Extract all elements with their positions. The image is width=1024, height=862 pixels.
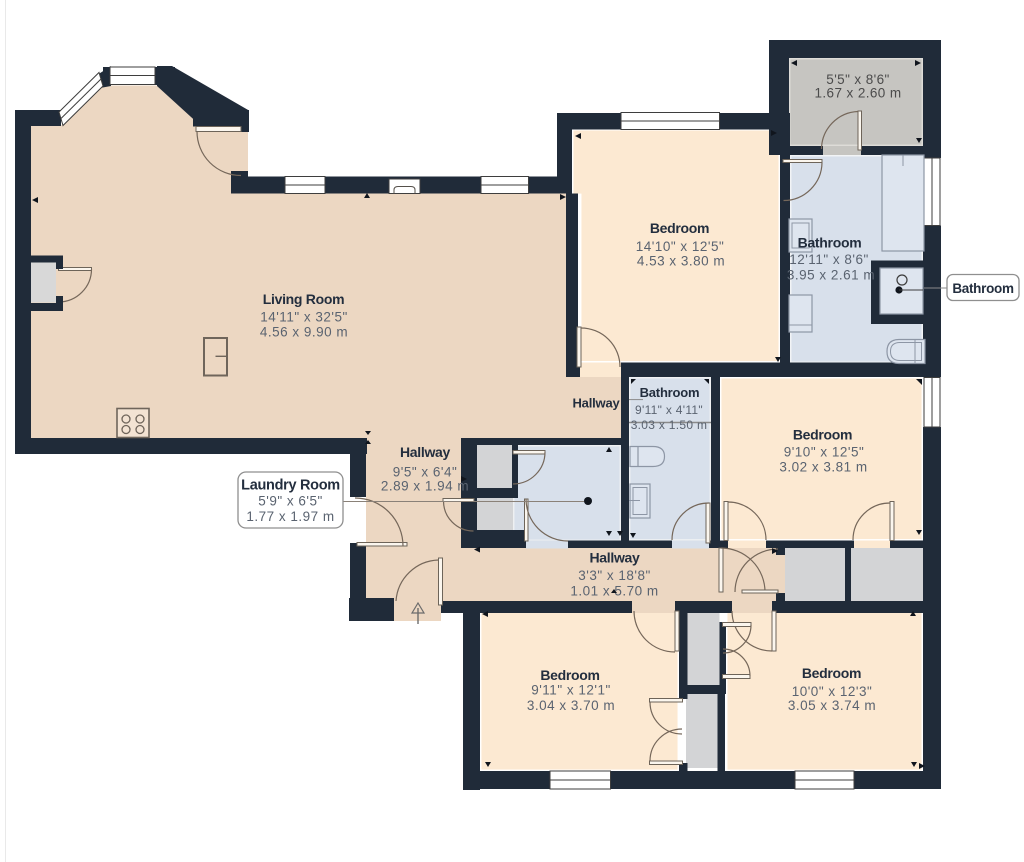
svg-text:Bathroom: Bathroom: [798, 235, 862, 251]
svg-text:9'11" x 4'11": 9'11" x 4'11": [635, 403, 703, 417]
svg-text:3'3" x 18'8": 3'3" x 18'8": [578, 568, 651, 583]
svg-text:Bedroom: Bedroom: [802, 665, 861, 681]
svg-text:Bathroom: Bathroom: [952, 281, 1014, 296]
svg-text:9'10" x 12'5": 9'10" x 12'5": [784, 445, 865, 460]
svg-text:3.05 x 3.74 m: 3.05 x 3.74 m: [788, 698, 876, 713]
svg-text:Hallway: Hallway: [400, 444, 451, 460]
svg-text:Bedroom: Bedroom: [540, 667, 599, 683]
svg-text:4.56 x 9.90 m: 4.56 x 9.90 m: [260, 325, 348, 340]
svg-text:14'10" x 12'5": 14'10" x 12'5": [636, 239, 725, 254]
svg-text:9'5" x 6'4": 9'5" x 6'4": [393, 465, 458, 480]
svg-text:Bedroom: Bedroom: [650, 220, 709, 236]
svg-text:2.89 x 1.94 m: 2.89 x 1.94 m: [381, 479, 469, 494]
svg-text:1.77 x 1.97 m: 1.77 x 1.97 m: [246, 509, 334, 524]
svg-text:Laundry Room: Laundry Room: [241, 478, 340, 494]
svg-text:1.67 x 2.60 m: 1.67 x 2.60 m: [815, 86, 902, 101]
svg-text:3.02 x 3.81 m: 3.02 x 3.81 m: [779, 460, 867, 475]
svg-text:10'0" x 12'3": 10'0" x 12'3": [792, 684, 873, 699]
svg-text:Hallway: Hallway: [572, 396, 620, 411]
svg-text:3.04 x 3.70 m: 3.04 x 3.70 m: [527, 698, 615, 713]
svg-text:4.53 x 3.80 m: 4.53 x 3.80 m: [637, 254, 725, 269]
svg-text:Bathroom: Bathroom: [640, 385, 700, 400]
svg-text:3.95 x 2.61 m: 3.95 x 2.61 m: [787, 268, 875, 283]
svg-text:12'11" x 8'6": 12'11" x 8'6": [789, 252, 869, 267]
svg-text:14'11" x 32'5": 14'11" x 32'5": [260, 310, 348, 325]
svg-text:3.03 x 1.50 m: 3.03 x 1.50 m: [631, 418, 708, 432]
svg-text:Hallway: Hallway: [589, 550, 640, 566]
svg-text:5'9" x 6'5": 5'9" x 6'5": [258, 494, 323, 509]
svg-text:Living Room: Living Room: [263, 291, 344, 307]
svg-text:9'11" x 12'1": 9'11" x 12'1": [531, 683, 611, 698]
svg-text:Bedroom: Bedroom: [793, 427, 852, 443]
